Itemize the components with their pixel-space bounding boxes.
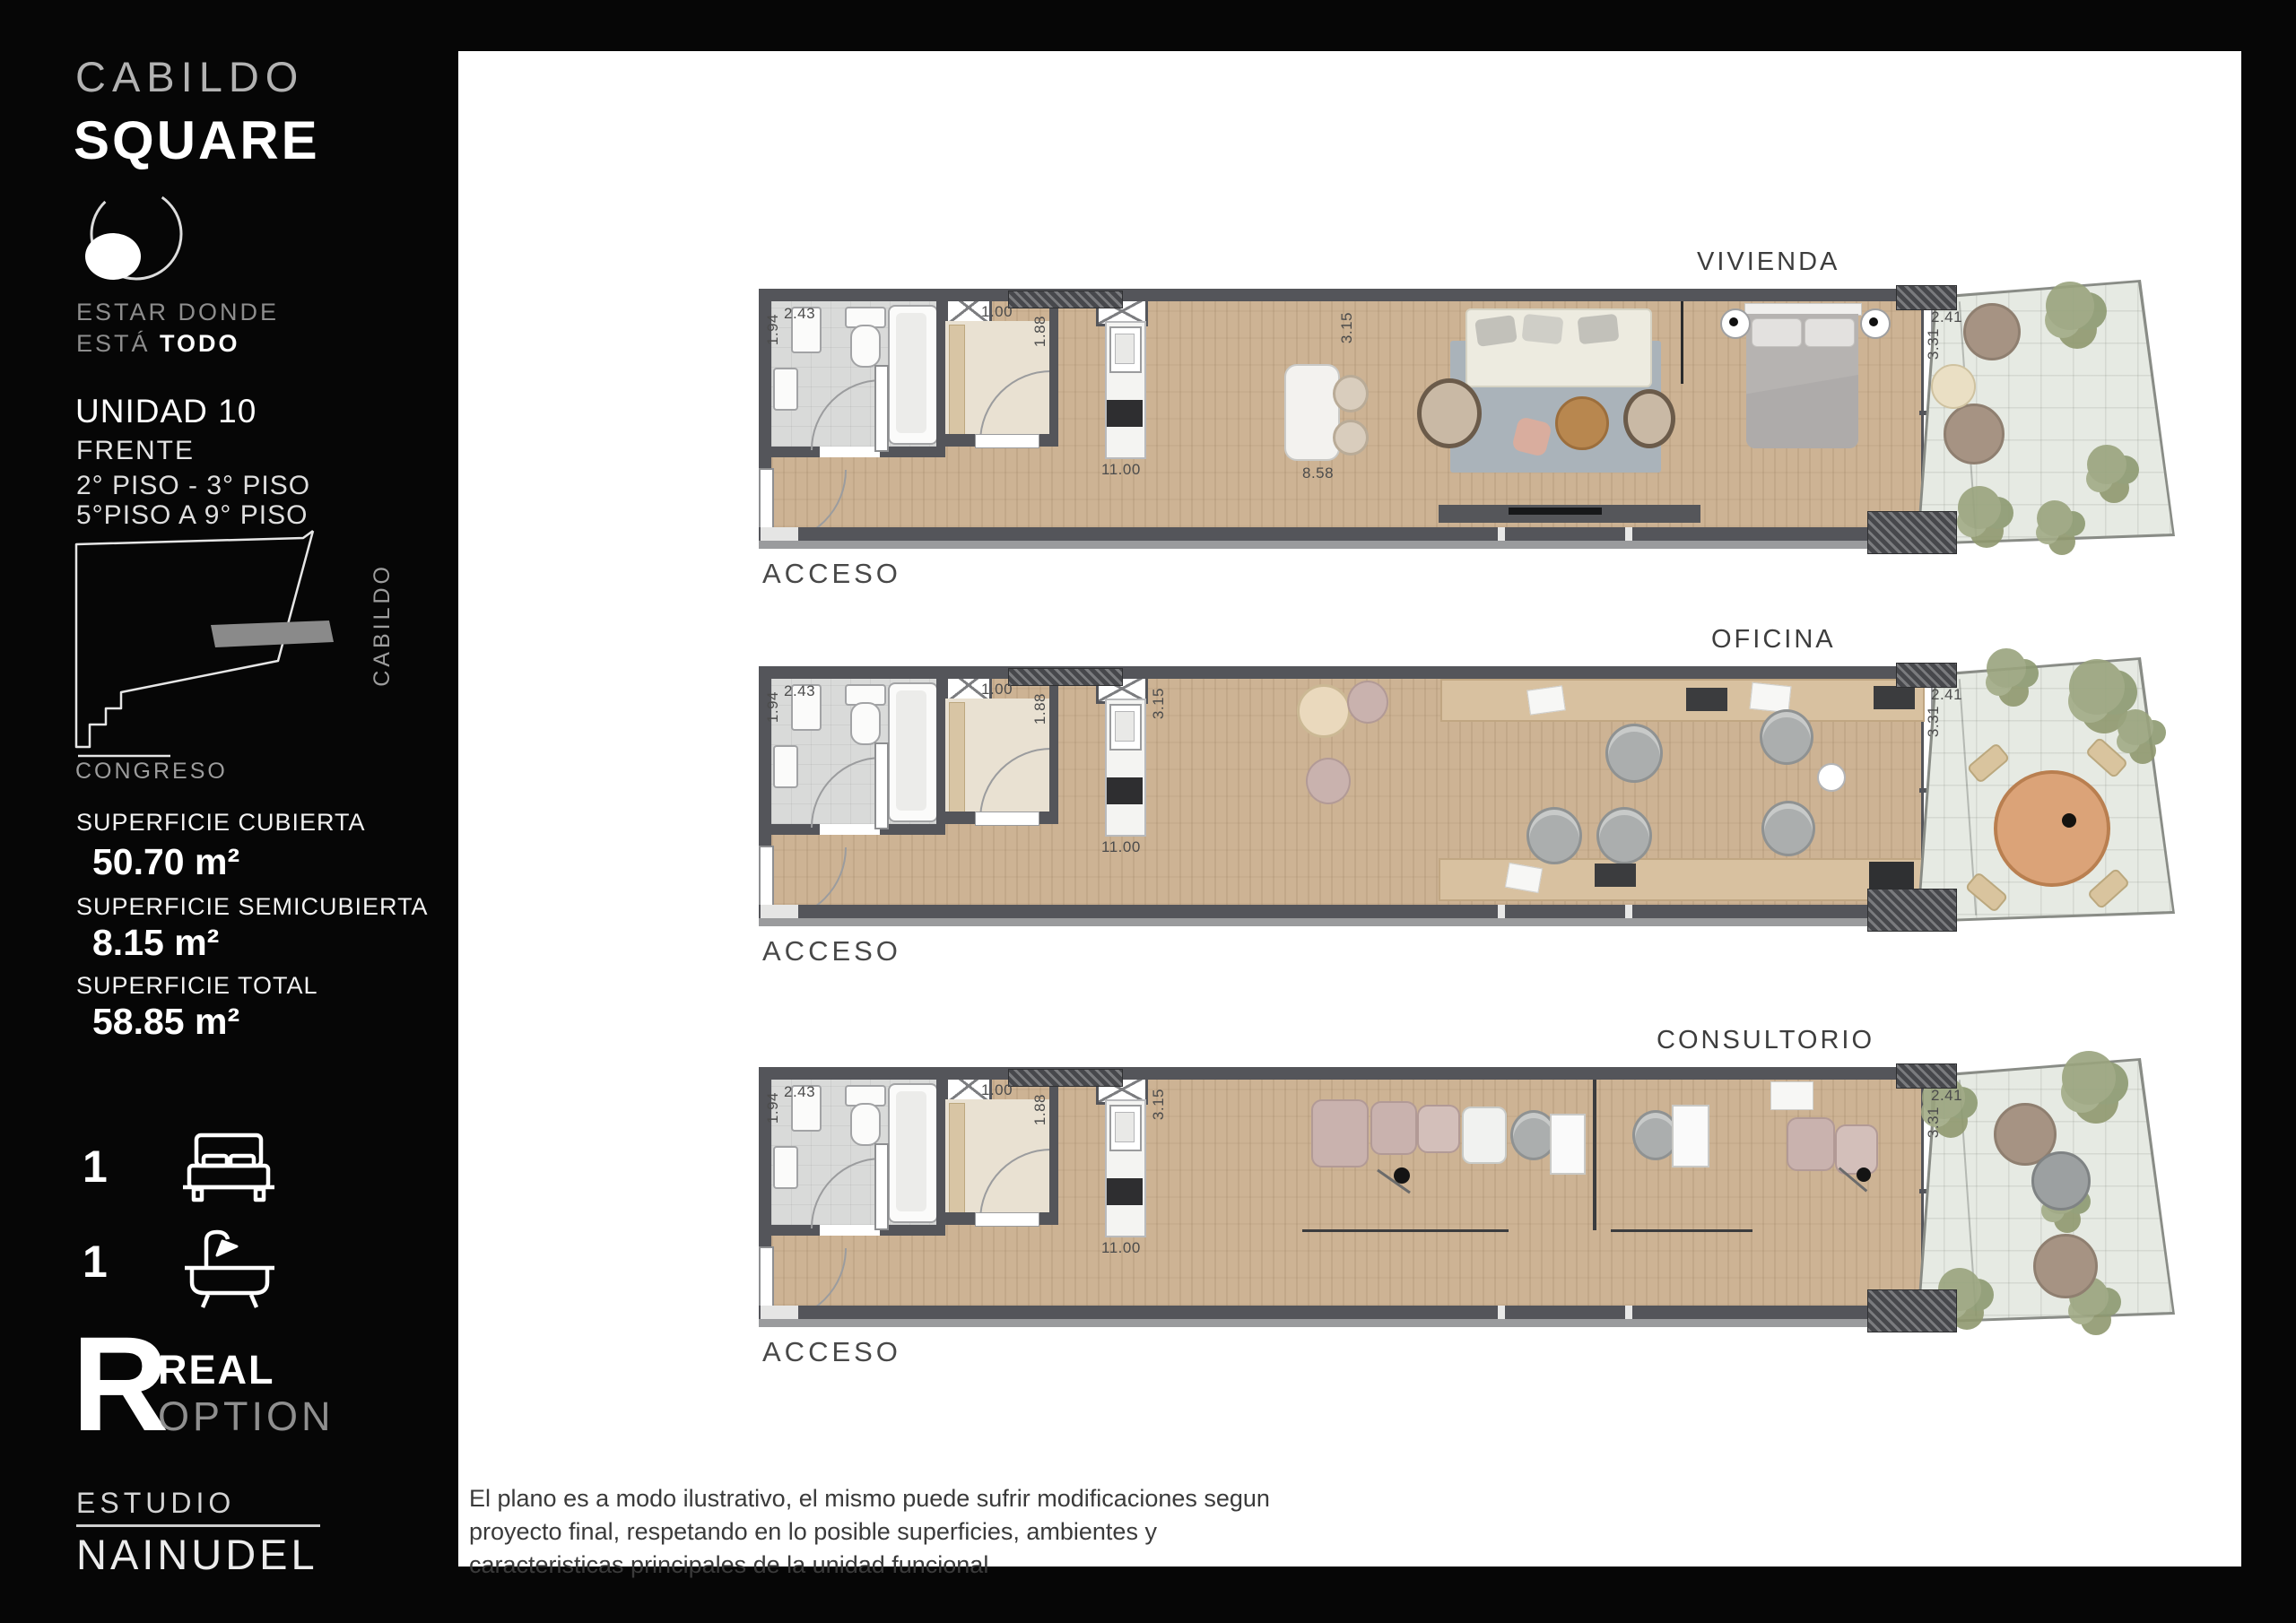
dim-bath-length: 2.43: [784, 1083, 815, 1101]
bathroom-count: 1: [83, 1236, 108, 1288]
dim-unit-length: 11.00: [1101, 838, 1141, 856]
unit-orientation: FRENTE: [76, 436, 195, 466]
access-label: ACCESO: [762, 1336, 901, 1368]
armchair: [1417, 378, 1482, 448]
laptop: [1686, 688, 1727, 711]
dim-bath-width: 1.94: [764, 314, 782, 345]
tagline-line2: ESTÁ TODO: [76, 330, 240, 358]
therapy-armchair: [1417, 1105, 1460, 1153]
real-option-r-logo-icon: R: [72, 1316, 169, 1451]
access-label: ACCESO: [762, 935, 901, 968]
guest-chair: [1347, 681, 1388, 724]
access-label: ACCESO: [762, 558, 901, 590]
dim-terrace-width: 2.41: [1931, 686, 1962, 704]
disclaimer-line2: proyecto final, respetando en lo posible…: [469, 1515, 1270, 1549]
real-option-line1: REAL: [158, 1347, 275, 1393]
glass-partition: [1611, 1229, 1752, 1232]
dim-living-length: 8.58: [1302, 464, 1334, 482]
floor-plan: VIVIENDA: [759, 289, 2194, 594]
therapy-armchair: [1787, 1117, 1835, 1171]
dim-bath-width: 1.94: [764, 1092, 782, 1124]
plan-title: VIVIENDA: [1697, 247, 1839, 277]
office-chair: [1605, 724, 1663, 783]
studio-line1: ESTUDIO: [76, 1487, 235, 1520]
dim-unit-length: 11.00: [1101, 461, 1141, 479]
bed-icon: [176, 1132, 282, 1209]
office-chair: [1596, 807, 1652, 864]
tagline-line1: ESTAR DONDE: [76, 299, 279, 326]
dim-terrace-width: 2.41: [1931, 308, 1962, 326]
dim-bath-length: 2.43: [784, 305, 815, 323]
dim-closet-length: 1.88: [1031, 693, 1049, 725]
dining-chair: [1333, 375, 1369, 412]
tv: [1509, 508, 1602, 515]
studio-underline: [76, 1524, 320, 1527]
surface-total-label: SUPERFICIE TOTAL: [76, 972, 318, 1000]
sofa-cushion: [1578, 314, 1620, 344]
dim-unit-width: 3.15: [1338, 312, 1356, 343]
disclaimer-text: El plano es a modo ilustrativo, el mismo…: [469, 1482, 1270, 1582]
surface-covered-label: SUPERFICIE CUBIERTA: [76, 809, 366, 837]
therapy-armchair: [1370, 1101, 1417, 1155]
dim-closet-width: 1.00: [981, 1081, 1013, 1099]
bedroom-count: 1: [83, 1141, 108, 1193]
disclaimer-line1: El plano es a modo ilustrativo, el mismo…: [469, 1482, 1270, 1515]
tagline-line2-gray: ESTÁ: [76, 330, 160, 357]
dim-unit-width: 3.15: [1150, 688, 1168, 719]
dim-bath-length: 2.43: [784, 682, 815, 700]
dining-table: [1284, 364, 1340, 461]
guest-chair: [1306, 758, 1351, 804]
sofa-cushion: [1522, 314, 1564, 344]
nightstand-lamp: [1869, 317, 1878, 326]
plan-title: CONSULTORIO: [1657, 1026, 1874, 1055]
desk-top: [1440, 679, 1925, 722]
terrace-wall-connector-bottom: [1867, 511, 1957, 554]
glass-partition: [1302, 1229, 1509, 1232]
map-street-congreso: CONGRESO: [75, 759, 228, 785]
dining-chair: [1333, 420, 1369, 456]
floor-plan: OFICINA: [759, 666, 2194, 971]
dim-closet-width: 1.00: [981, 681, 1013, 699]
dim-terrace-length: 3.31: [1925, 1107, 1943, 1138]
surface-semicovered-label: SUPERFICIE SEMICUBIERTA: [76, 893, 429, 921]
dim-closet-width: 1.00: [981, 303, 1013, 321]
building-footprint: [211, 621, 334, 647]
floor-plan: CONSULTORIO: [759, 1067, 2194, 1372]
brand-orbit-logo-icon: [72, 185, 206, 297]
floors-line2: 5°PISO A 9° PISO: [76, 500, 308, 531]
surface-covered-value: 50.70 m²: [92, 841, 239, 883]
therapy-armchair: [1835, 1124, 1878, 1175]
desk-papers: [1770, 1081, 1813, 1110]
terrace-wall-connector-top: [1896, 1063, 1957, 1089]
monitor: [1869, 862, 1914, 890]
therapy-chaise: [1311, 1099, 1369, 1167]
dim-terrace-width: 2.41: [1931, 1087, 1962, 1105]
dim-closet-length: 1.88: [1031, 1094, 1049, 1125]
bed-pillow: [1752, 318, 1802, 347]
surface-total-value: 58.85 m²: [92, 1001, 239, 1043]
tagline-line2-bold: TODO: [160, 330, 240, 357]
office-chair: [1761, 801, 1815, 856]
bed-pillow: [1805, 318, 1855, 347]
sofa-cushion: [1474, 315, 1518, 347]
terrace-wall-connector-top: [1896, 663, 1957, 688]
brand-name-bottom: SQUARE: [74, 109, 320, 171]
nightstand-lamp: [1729, 317, 1738, 326]
dim-terrace-length: 3.31: [1925, 328, 1943, 360]
brochure-page: CABILDO SQUARE ESTAR DONDE ESTÁ TODO UNI…: [0, 0, 2296, 1623]
dim-closet-length: 1.88: [1031, 316, 1049, 347]
laptop: [1595, 864, 1636, 887]
laptop: [1874, 686, 1915, 709]
unit-title: UNIDAD 10: [75, 393, 257, 430]
armchair: [1623, 389, 1675, 448]
office-chair: [1526, 807, 1582, 864]
dim-unit-length: 11.00: [1101, 1239, 1141, 1257]
dim-bath-width: 1.94: [764, 691, 782, 723]
disclaimer-line3: caracteristicas principales de la unidad…: [469, 1549, 1270, 1582]
real-option-line2: OPTION: [158, 1393, 335, 1440]
consult-desk: [1550, 1114, 1586, 1175]
patient-chair: [1462, 1107, 1507, 1164]
plan-title: OFICINA: [1711, 625, 1836, 655]
content-panel: VIVIENDA: [458, 51, 2241, 1567]
meeting-table: [1297, 684, 1351, 738]
bathtub-icon: [179, 1225, 280, 1315]
consult-desk: [1672, 1105, 1709, 1167]
coffee-table: [1555, 396, 1609, 450]
floor-lamp: [1857, 1167, 1871, 1182]
office-chair: [1760, 709, 1813, 765]
floors-line1: 2° PISO - 3° PISO: [76, 471, 310, 501]
terrace-wall-connector-bottom: [1867, 1289, 1957, 1332]
terrace-wall-connector-bottom: [1867, 889, 1957, 932]
map-street-cabildo: CABILDO: [370, 563, 396, 687]
room-partition: [1593, 1080, 1596, 1230]
side-table: [1817, 763, 1846, 792]
terrace-wall-connector-top: [1896, 285, 1957, 310]
location-map-sketch: [72, 529, 404, 780]
desk-papers: [1526, 685, 1566, 715]
studio-line2: NAINUDEL: [76, 1530, 318, 1579]
dim-unit-width: 3.15: [1150, 1089, 1168, 1120]
dim-terrace-length: 3.31: [1925, 706, 1943, 737]
bedroom-partition: [1681, 301, 1683, 384]
brand-name-top: CABILDO: [75, 52, 304, 101]
surface-semicovered-value: 8.15 m²: [92, 922, 219, 964]
